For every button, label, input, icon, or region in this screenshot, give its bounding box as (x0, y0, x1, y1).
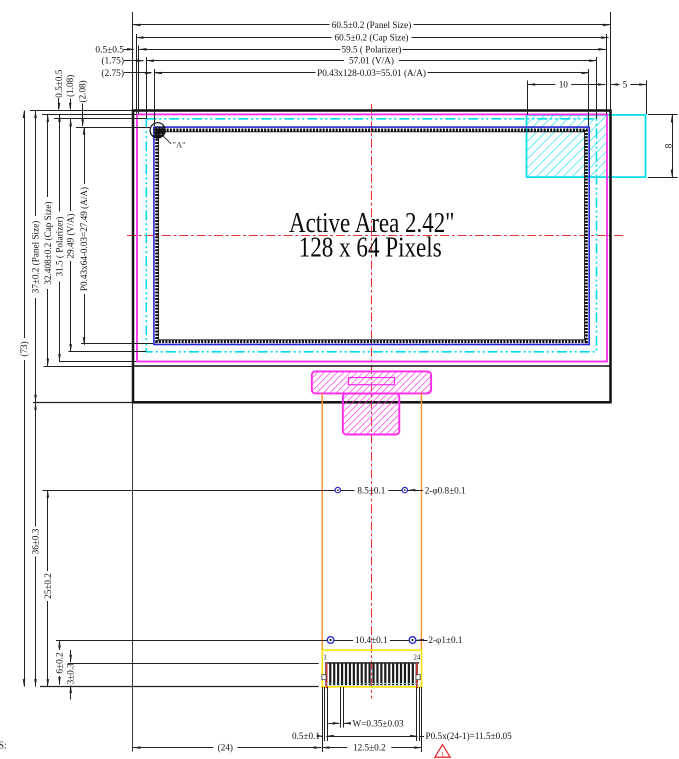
svg-text:10.4±0.1: 10.4±0.1 (355, 635, 388, 645)
svg-text:32.408±0.2 (Cap Size): 32.408±0.2 (Cap Size) (43, 201, 53, 284)
svg-text:37±0.2 (Panel Size): 37±0.2 (Panel Size) (31, 221, 41, 294)
svg-text:0.5±0.1: 0.5±0.1 (292, 731, 320, 741)
svg-text:"A": "A" (173, 140, 186, 150)
svg-text:0.5±0.5: 0.5±0.5 (54, 69, 64, 97)
svg-text:(1.75): (1.75) (101, 56, 124, 67)
svg-text:W=0.35±0.03: W=0.35±0.03 (353, 719, 404, 729)
svg-text:12.5±0.2: 12.5±0.2 (353, 743, 386, 753)
svg-text:P0.5x(24-1)=11.5±0.05: P0.5x(24-1)=11.5±0.05 (426, 731, 513, 741)
svg-text:P0.43x64-0.03=27.49 (A/A): P0.43x64-0.03=27.49 (A/A) (79, 187, 89, 291)
svg-text:57.01 (V/A): 57.01 (V/A) (349, 56, 394, 66)
svg-text:(2.08): (2.08) (78, 80, 88, 102)
svg-text:2-φ1±0.1: 2-φ1±0.1 (428, 635, 462, 645)
svg-text:2-φ0.8±0.1: 2-φ0.8±0.1 (425, 485, 466, 495)
svg-text:25±0.2: 25±0.2 (43, 573, 53, 599)
svg-text:10: 10 (559, 80, 569, 90)
svg-text:S:: S: (0, 740, 7, 751)
svg-text:24: 24 (414, 654, 421, 661)
svg-text:36±0.3: 36±0.3 (31, 528, 41, 554)
svg-text:128 x 64 Pixels: 128 x 64 Pixels (299, 231, 442, 263)
svg-text:0.5±0.5: 0.5±0.5 (95, 45, 124, 55)
svg-text:6±0.2: 6±0.2 (55, 652, 65, 674)
svg-text:8: 8 (664, 143, 674, 148)
svg-text:P0.43x128-0.03=55.01 (A/A): P0.43x128-0.03=55.01 (A/A) (317, 68, 426, 78)
svg-text:1: 1 (323, 654, 326, 661)
svg-text:3±0.3: 3±0.3 (66, 663, 76, 685)
svg-text:(1.08): (1.08) (65, 75, 75, 97)
svg-text:60.5±0.2 (Panel Size): 60.5±0.2 (Panel Size) (332, 20, 412, 30)
svg-text:29.49 (V/A): 29.49 (V/A) (66, 214, 76, 259)
svg-text:31.5 ( Polarizer): 31.5 ( Polarizer) (55, 217, 65, 277)
svg-text:5: 5 (623, 80, 628, 90)
svg-text:(24): (24) (218, 743, 233, 753)
svg-text:(2.75): (2.75) (101, 68, 124, 79)
svg-text:8.5±0.1: 8.5±0.1 (357, 485, 385, 495)
svg-text:60.5±0.2 (Cap Size): 60.5±0.2 (Cap Size) (335, 33, 409, 43)
svg-text:(73): (73) (19, 341, 29, 356)
svg-text:59.5 ( Polarizer): 59.5 ( Polarizer) (342, 44, 402, 54)
svg-text:1: 1 (441, 751, 444, 758)
